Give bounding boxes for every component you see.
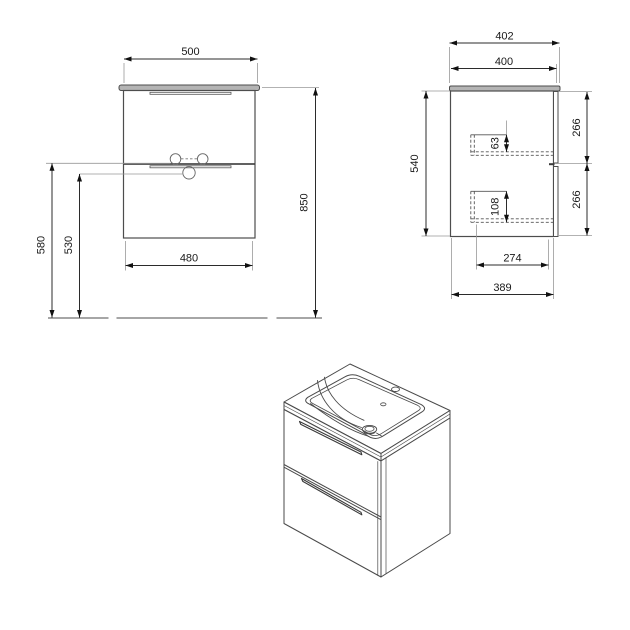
vanity-dimension-drawing: 500 850 580 530 480 [0,0,630,630]
side-cabinet-body [451,91,554,237]
side-drawer-depth-value: 274 [503,253,521,265]
side-lower-front-value: 266 [571,190,583,208]
front-view: 500 850 580 530 480 [36,46,323,318]
front-upper-height-value: 580 [36,236,48,254]
side-top-depth-value: 402 [495,31,513,43]
side-upper-inset-value: 63 [490,137,502,149]
front-total-height-value: 850 [299,193,311,211]
front-top-width-value: 500 [181,46,199,58]
side-lower-drawer-front [554,167,559,237]
perspective-view [284,364,450,577]
side-lower-inset-value: 108 [490,198,502,216]
side-upper-front-value: 266 [571,118,583,136]
side-upper-drawer-front [554,92,559,164]
front-countertop [119,85,260,91]
side-body-depth-value: 400 [495,56,513,68]
front-lower-height-value: 530 [63,236,75,254]
side-view: 402 400 540 266 266 63 108 274 389 [409,31,592,300]
side-body-height-value: 540 [409,154,421,172]
front-bottom-width-value: 480 [180,253,198,265]
side-carcass-depth-value: 389 [493,282,511,294]
side-handle-mark [549,163,555,165]
side-countertop [450,86,561,91]
technical-drawing-sheet: 500 850 580 530 480 [0,0,630,630]
